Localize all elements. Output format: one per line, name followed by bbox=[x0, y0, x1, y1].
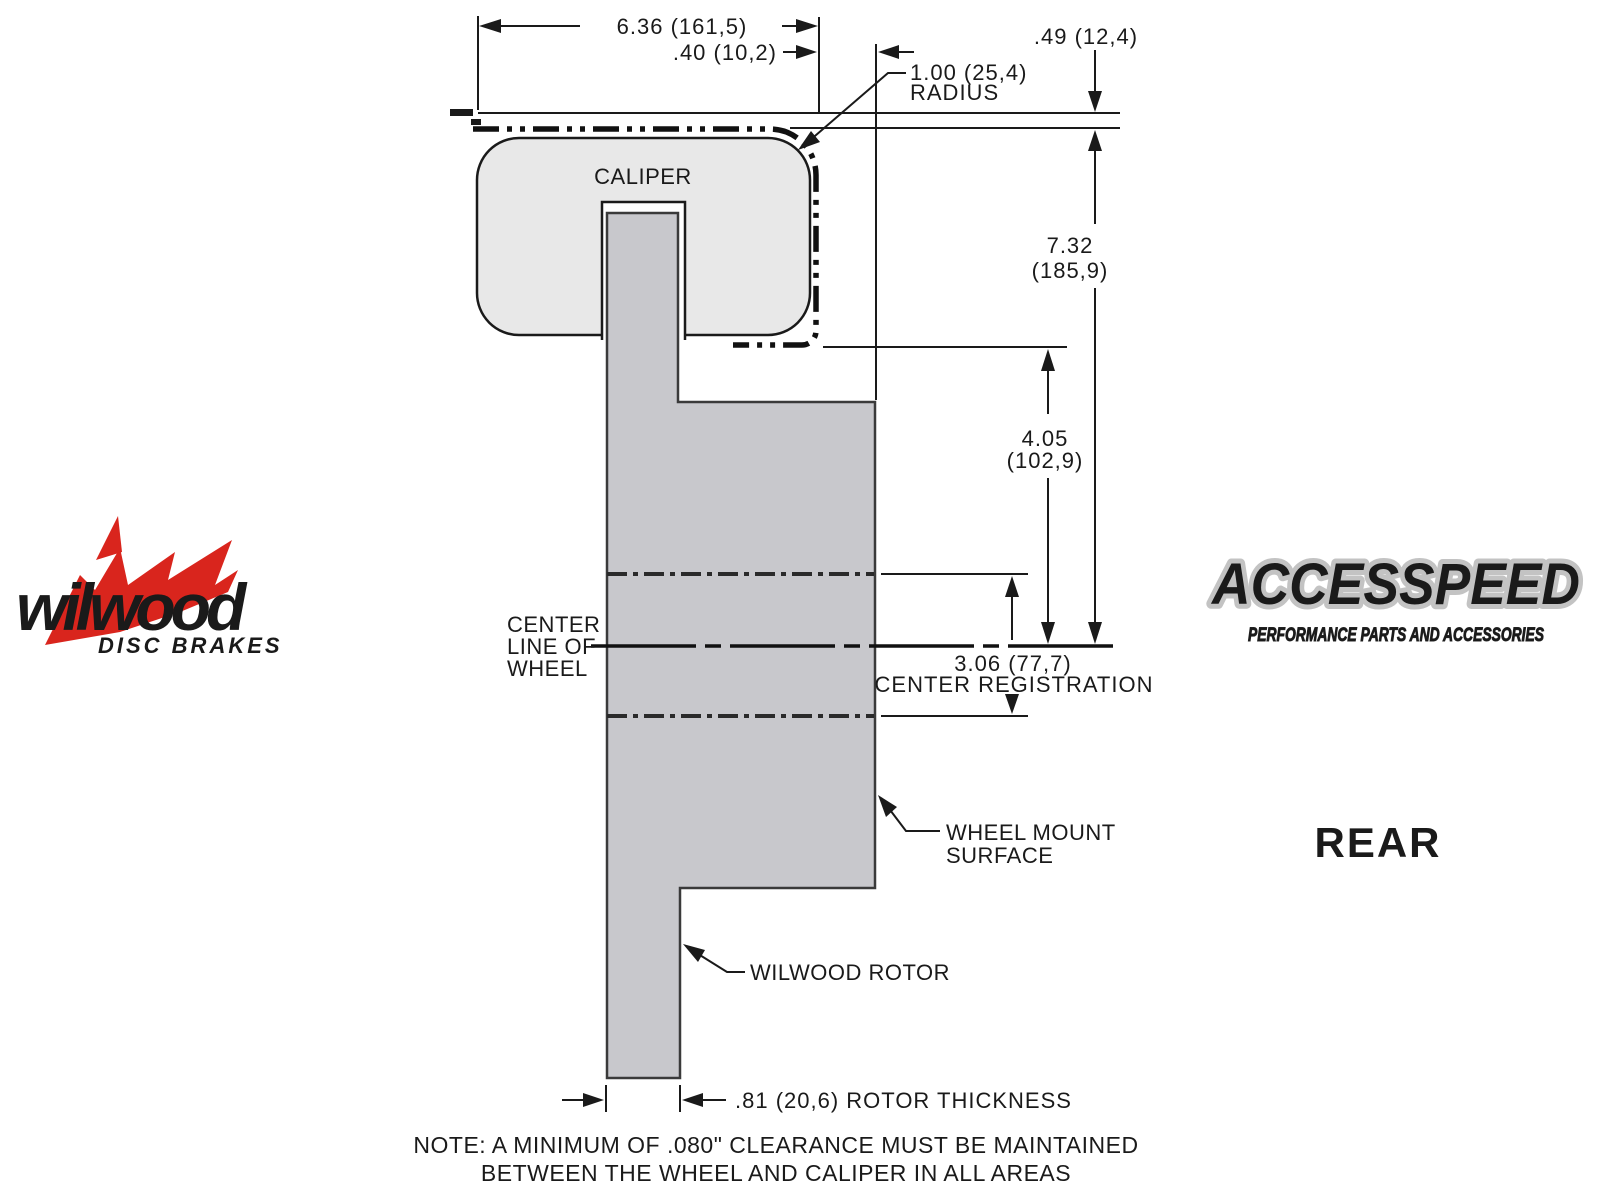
callout-rotor: WILWOOD ROTOR bbox=[683, 944, 950, 985]
phantom-line-start-dash bbox=[450, 109, 473, 116]
note-line2: BETWEEN THE WHEEL AND CALIPER IN ALL ARE… bbox=[481, 1160, 1071, 1186]
note-line1: NOTE: A MINIMUM OF .080" CLEARANCE MUST … bbox=[413, 1132, 1138, 1158]
rotor-thickness-text: .81 (20,6) ROTOR THICKNESS bbox=[735, 1088, 1072, 1113]
dim-7-32 bbox=[1088, 151, 1102, 644]
accesspeed-tagline: PERFORMANCE PARTS AND ACCESSORIES bbox=[1248, 625, 1544, 646]
center-registration-label: CENTER REGISTRATION bbox=[875, 672, 1154, 697]
wheel-section-lines bbox=[478, 113, 1120, 128]
svg-text:WHEEL: WHEEL bbox=[507, 656, 588, 681]
callout-wheel-mount: WHEEL MOUNT SURFACE bbox=[878, 795, 1116, 868]
svg-text:WILWOOD ROTOR: WILWOOD ROTOR bbox=[750, 960, 950, 985]
phantom-line-start-dash2 bbox=[471, 119, 481, 125]
dim-rotor-thickness bbox=[562, 1085, 726, 1112]
accesspeed-logo: ACCESSPEED ACCESSPEED PERFORMANCE PARTS … bbox=[1210, 552, 1580, 646]
note-block: NOTE: A MINIMUM OF .080" CLEARANCE MUST … bbox=[413, 1132, 1138, 1186]
wilwood-logo: wilwood DISC BRAKES bbox=[16, 516, 283, 658]
dim-7-32-mm-text: (185,9) bbox=[1032, 258, 1109, 283]
caliper-label: CALIPER bbox=[594, 164, 692, 189]
brake-diagram-page: CALIPER 6.36 (161,5) .40 (10,2) .49 (12,… bbox=[0, 0, 1600, 1200]
dim-4-05-mm-text: (102,9) bbox=[1007, 448, 1084, 473]
callout-radius bbox=[798, 73, 906, 150]
radius-word-text: RADIUS bbox=[910, 80, 999, 105]
svg-text:SURFACE: SURFACE bbox=[946, 843, 1053, 868]
view-label: REAR bbox=[1314, 819, 1441, 866]
wilwood-tagline: DISC BRAKES bbox=[98, 633, 283, 658]
accesspeed-wordmark: ACCESSPEED bbox=[1210, 552, 1580, 617]
dim-0-49-text: .49 (12,4) bbox=[1034, 24, 1138, 49]
dim-7-32-text: 7.32 bbox=[1047, 233, 1094, 258]
svg-text:WHEEL MOUNT: WHEEL MOUNT bbox=[946, 820, 1116, 845]
technical-drawing: CALIPER 6.36 (161,5) .40 (10,2) .49 (12,… bbox=[0, 0, 1600, 1200]
dim-0-49 bbox=[1088, 50, 1102, 151]
dim-0-40-text: .40 (10,2) bbox=[673, 40, 777, 65]
dim-6-36-text: 6.36 (161,5) bbox=[617, 14, 748, 39]
centerline-label: CENTER LINE OF WHEEL bbox=[507, 612, 600, 681]
